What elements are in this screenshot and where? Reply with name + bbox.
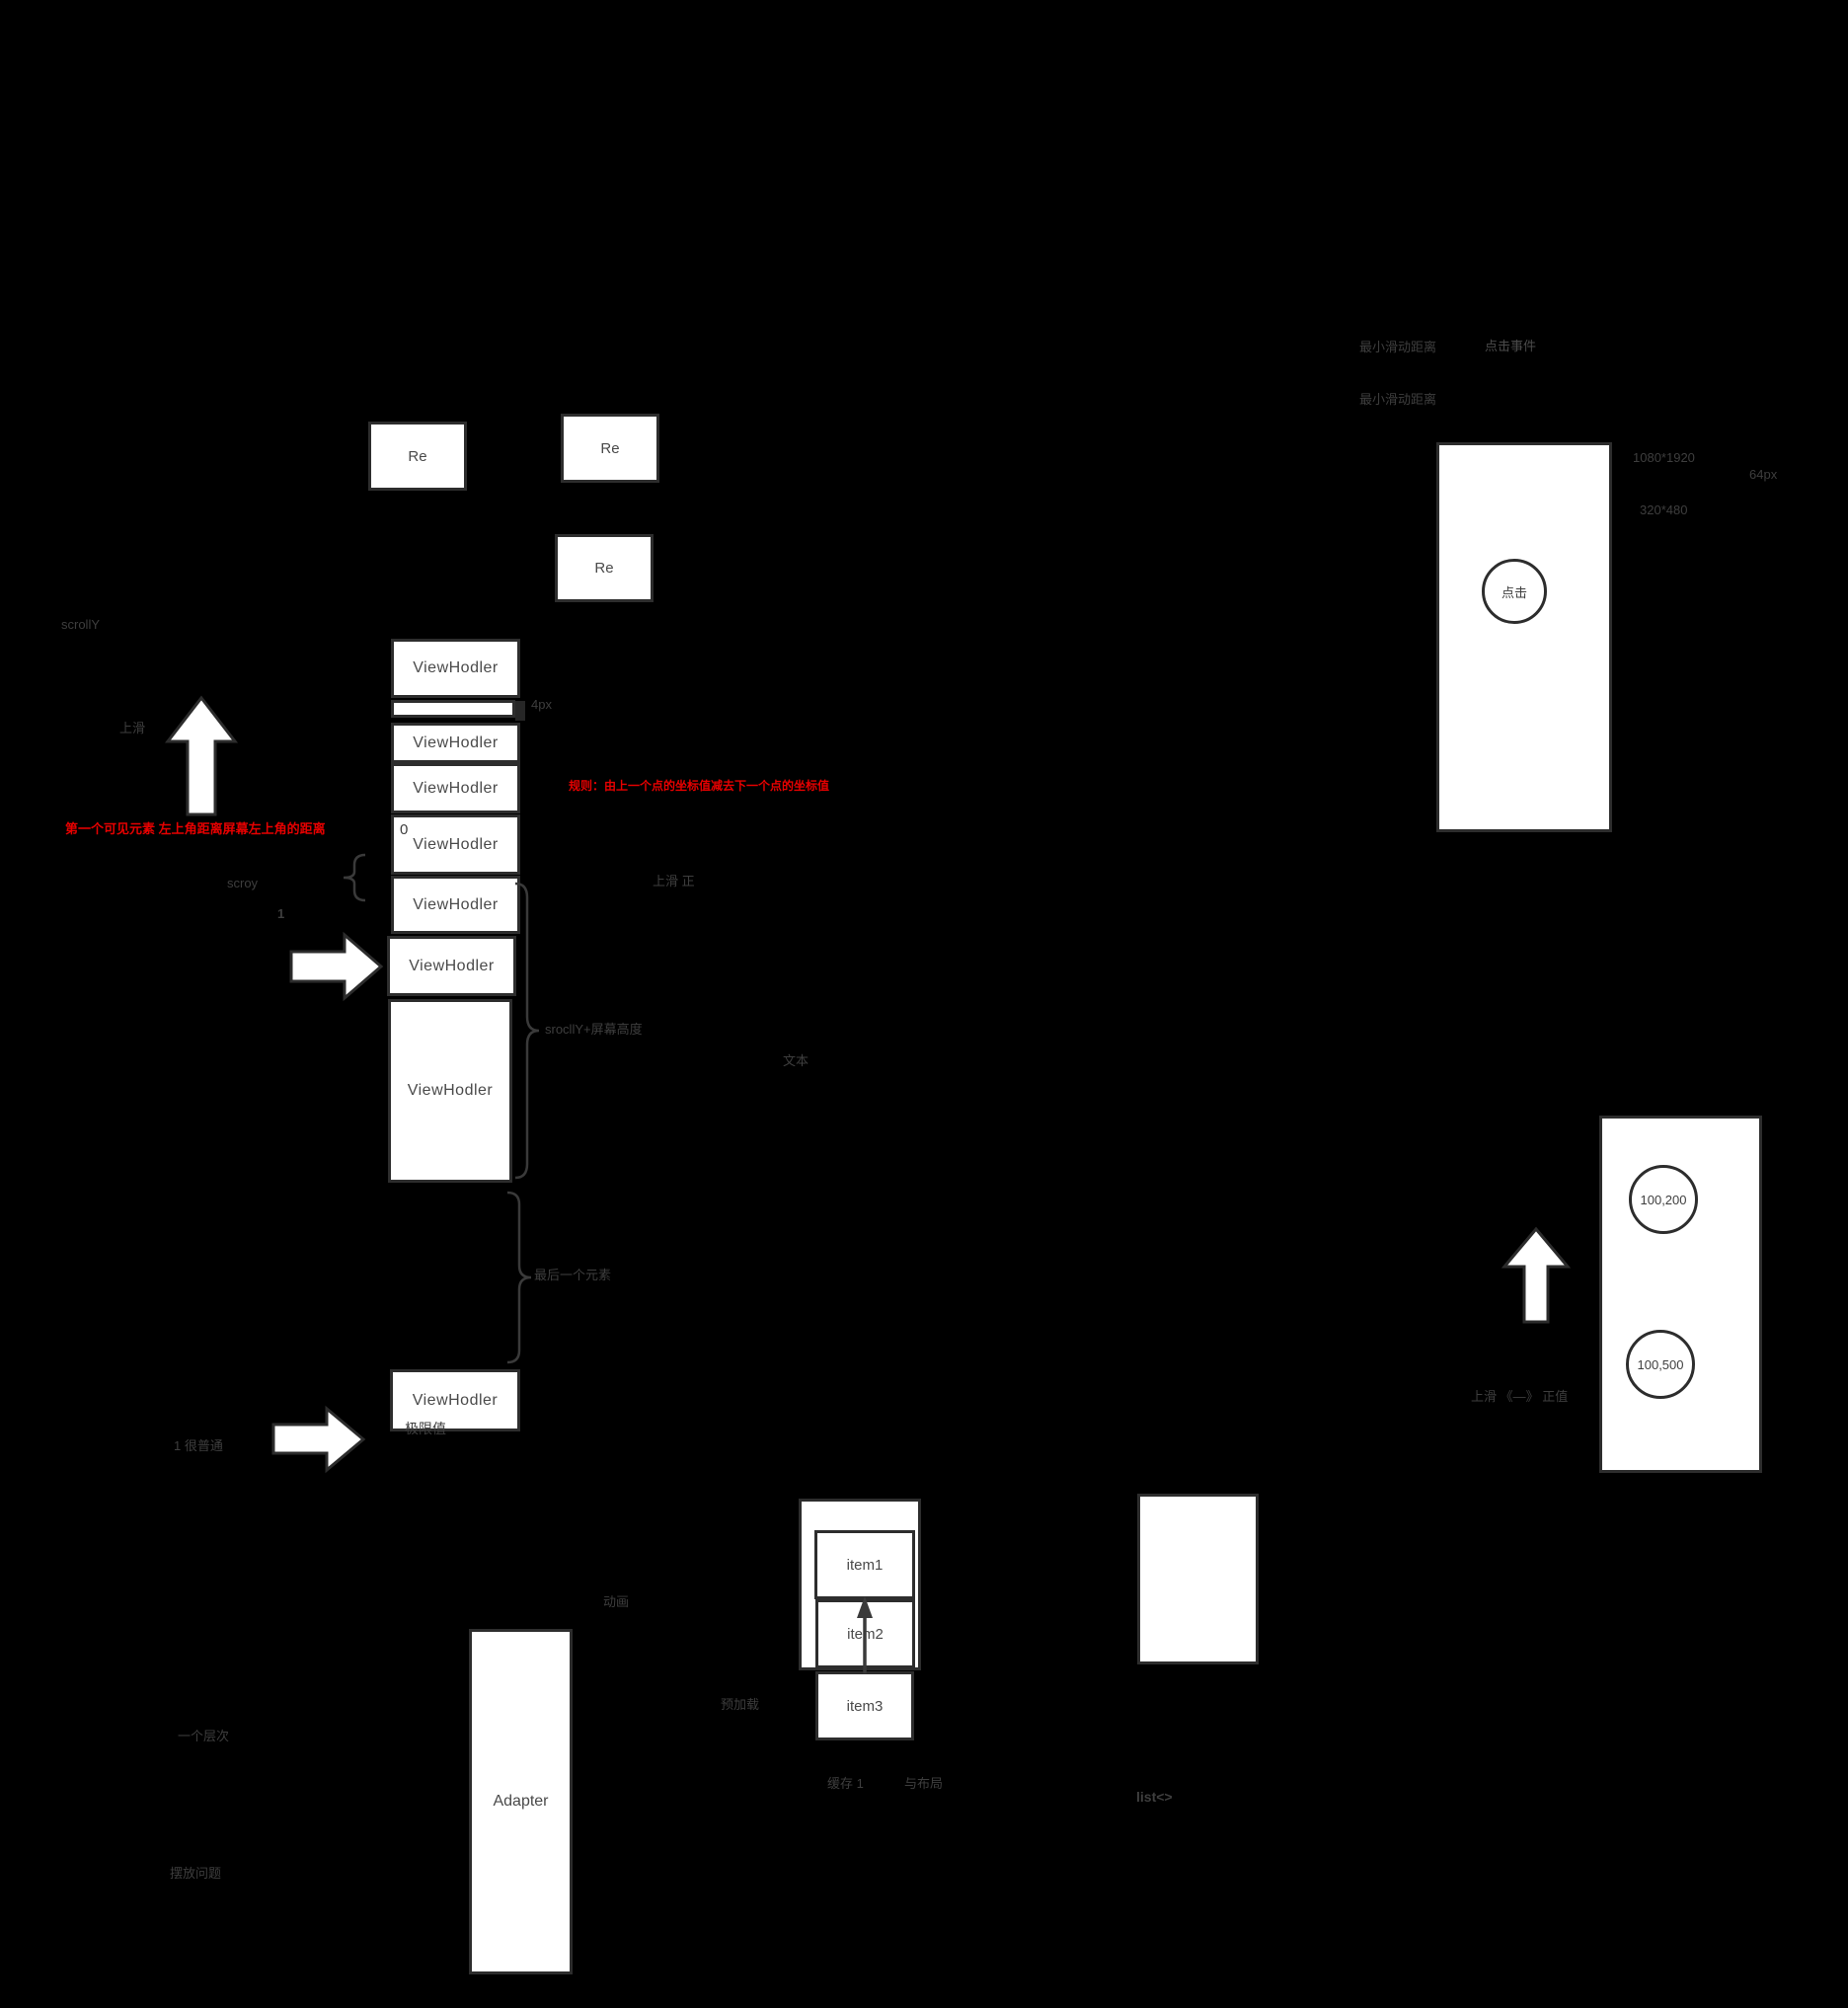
- one-level-label: 一个层次: [178, 1730, 229, 1742]
- viewholder-box-2: ViewHodler: [391, 723, 520, 763]
- viewholder-box-6: ViewHodler: [387, 936, 516, 996]
- re-box-1: Re: [368, 422, 467, 491]
- one-ordinary-label: 1 很普通: [174, 1439, 223, 1452]
- list-generic-label: list<>: [1136, 1790, 1173, 1804]
- viewholder-1-label: ViewHodler: [413, 659, 499, 677]
- re-box-2: Re: [561, 414, 659, 483]
- text-label: 文本: [783, 1054, 808, 1067]
- viewholder-6-label: ViewHodler: [409, 958, 495, 975]
- scroy-left-brace-icon: [342, 853, 367, 902]
- re-box-1-label: Re: [408, 448, 426, 465]
- first-visible-note: 第一个可见元素 左上角距离屏幕左上角的距离: [65, 822, 326, 835]
- swipe-up-arrow-icon: [166, 696, 237, 816]
- re-box-2-label: Re: [600, 440, 619, 457]
- zero-offset-label: 0: [400, 821, 409, 838]
- viewholder-box-3: ViewHodler: [391, 763, 520, 813]
- resolution-big-label: 1080*1920: [1633, 451, 1695, 464]
- coordinates-up-arrow-icon: [1502, 1227, 1570, 1324]
- item1-box: item1: [814, 1530, 915, 1599]
- last-element-brace-icon: [505, 1191, 533, 1364]
- cache-label: 缓存 1: [827, 1777, 864, 1790]
- limit-pointer-arrow-icon: [271, 1407, 366, 1472]
- viewholder-4-label: ViewHodler: [413, 836, 499, 854]
- viewholder-box-4: 0 ViewHodler: [391, 814, 520, 875]
- empty-cache-box: [1137, 1494, 1259, 1664]
- coordinates-box: 100,200 100,500: [1599, 1116, 1762, 1473]
- item1-label: item1: [847, 1557, 884, 1574]
- with-layout-label: 与布局: [904, 1777, 943, 1790]
- adapter-box: Adapter: [469, 1629, 573, 1974]
- pointer-right-arrow-icon: [289, 933, 384, 1000]
- limit-value-label: 极限值: [405, 1422, 446, 1435]
- point-bottom-label: 100,500: [1638, 1357, 1684, 1372]
- item3-box: item3: [815, 1671, 914, 1740]
- viewholder-box-1: ViewHodler: [391, 639, 520, 698]
- gap-spacer-box: [391, 700, 515, 718]
- animation-label: 动画: [603, 1595, 629, 1608]
- phone-screen-box: 点击: [1436, 442, 1612, 832]
- re-box-3: Re: [555, 534, 654, 602]
- adapter-label: Adapter: [493, 1793, 548, 1811]
- min-slide-distance-label-2: 最小滑动距离: [1359, 393, 1436, 406]
- point-top-label: 100,200: [1641, 1193, 1687, 1207]
- gap-size-label: 4px: [531, 698, 552, 711]
- resolution-small-label: 320*480: [1640, 503, 1687, 516]
- min-slide-distance-label-1: 最小滑动距离: [1359, 341, 1436, 353]
- scroll-plus-screen-label: srocllY+屏幕高度: [545, 1023, 643, 1036]
- click-circle: 点击: [1482, 559, 1547, 624]
- status-bar-px-label: 64px: [1749, 468, 1777, 481]
- viewholder-3-label: ViewHodler: [413, 780, 499, 798]
- viewholder-box-7: ViewHodler: [388, 999, 512, 1183]
- swipe-up-label: 上滑: [119, 722, 145, 734]
- point-bottom-circle: 100,500: [1626, 1330, 1695, 1399]
- index-one-label: 1: [277, 907, 284, 920]
- swipe-note-label: 上滑 《—》 正值: [1471, 1390, 1568, 1403]
- viewholder-5-label: ViewHodler: [413, 896, 499, 914]
- click-circle-label: 点击: [1501, 582, 1527, 601]
- rule-note: 规则：由上一个点的坐标值减去下一个点的坐标值: [569, 780, 829, 792]
- re-box-3-label: Re: [594, 560, 613, 577]
- last-element-label: 最后一个元素: [534, 1269, 611, 1281]
- swipe-positive-label: 上滑 正: [653, 875, 695, 888]
- preload-label: 预加载: [721, 1698, 759, 1711]
- placement-label: 摆放问题: [170, 1867, 221, 1880]
- viewholder-detached-label: ViewHodler: [413, 1392, 499, 1410]
- click-event-label: 点击事件: [1485, 340, 1536, 352]
- viewholder-box-5: ViewHodler: [391, 876, 520, 934]
- viewholder-2-label: ViewHodler: [413, 734, 499, 752]
- item3-label: item3: [847, 1698, 884, 1715]
- item-recycle-up-arrow-icon: [855, 1594, 875, 1678]
- diagram-canvas: Re Re Re ViewHodler 4px ViewHodler ViewH…: [0, 0, 1848, 2008]
- screen-height-brace-icon: [513, 882, 541, 1180]
- viewholder-7-label: ViewHodler: [408, 1082, 494, 1100]
- scroy-label: scroy: [227, 877, 258, 889]
- gap-tab: [515, 701, 525, 721]
- point-top-circle: 100,200: [1629, 1165, 1698, 1234]
- scrolly-label: scrollY: [61, 618, 100, 631]
